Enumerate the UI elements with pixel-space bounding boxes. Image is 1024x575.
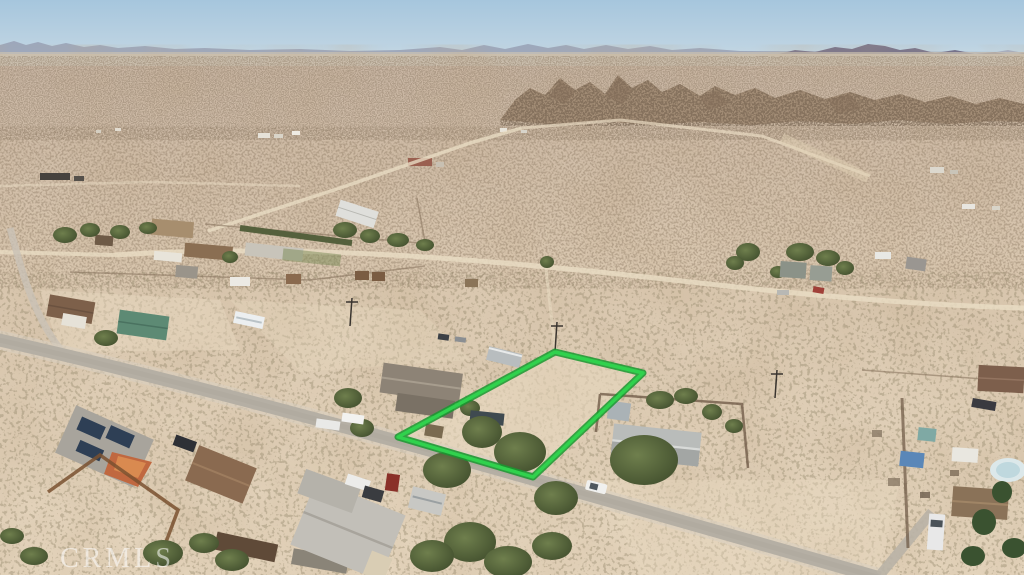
white-container [230,277,250,286]
homestead-house-2 [809,265,832,281]
gray-car [777,290,789,295]
red-vehicle [385,473,400,492]
white-canopy [952,447,979,463]
yard-tree [94,330,118,346]
homestead-house-1 [780,261,807,279]
white-truck [927,513,945,550]
watermark-text: CRMLS [60,543,175,574]
blue-tarp [899,451,924,468]
aerial-photo: CRMLS [0,0,1024,575]
front-yard-tree [610,435,678,485]
white-trailer [875,252,891,259]
